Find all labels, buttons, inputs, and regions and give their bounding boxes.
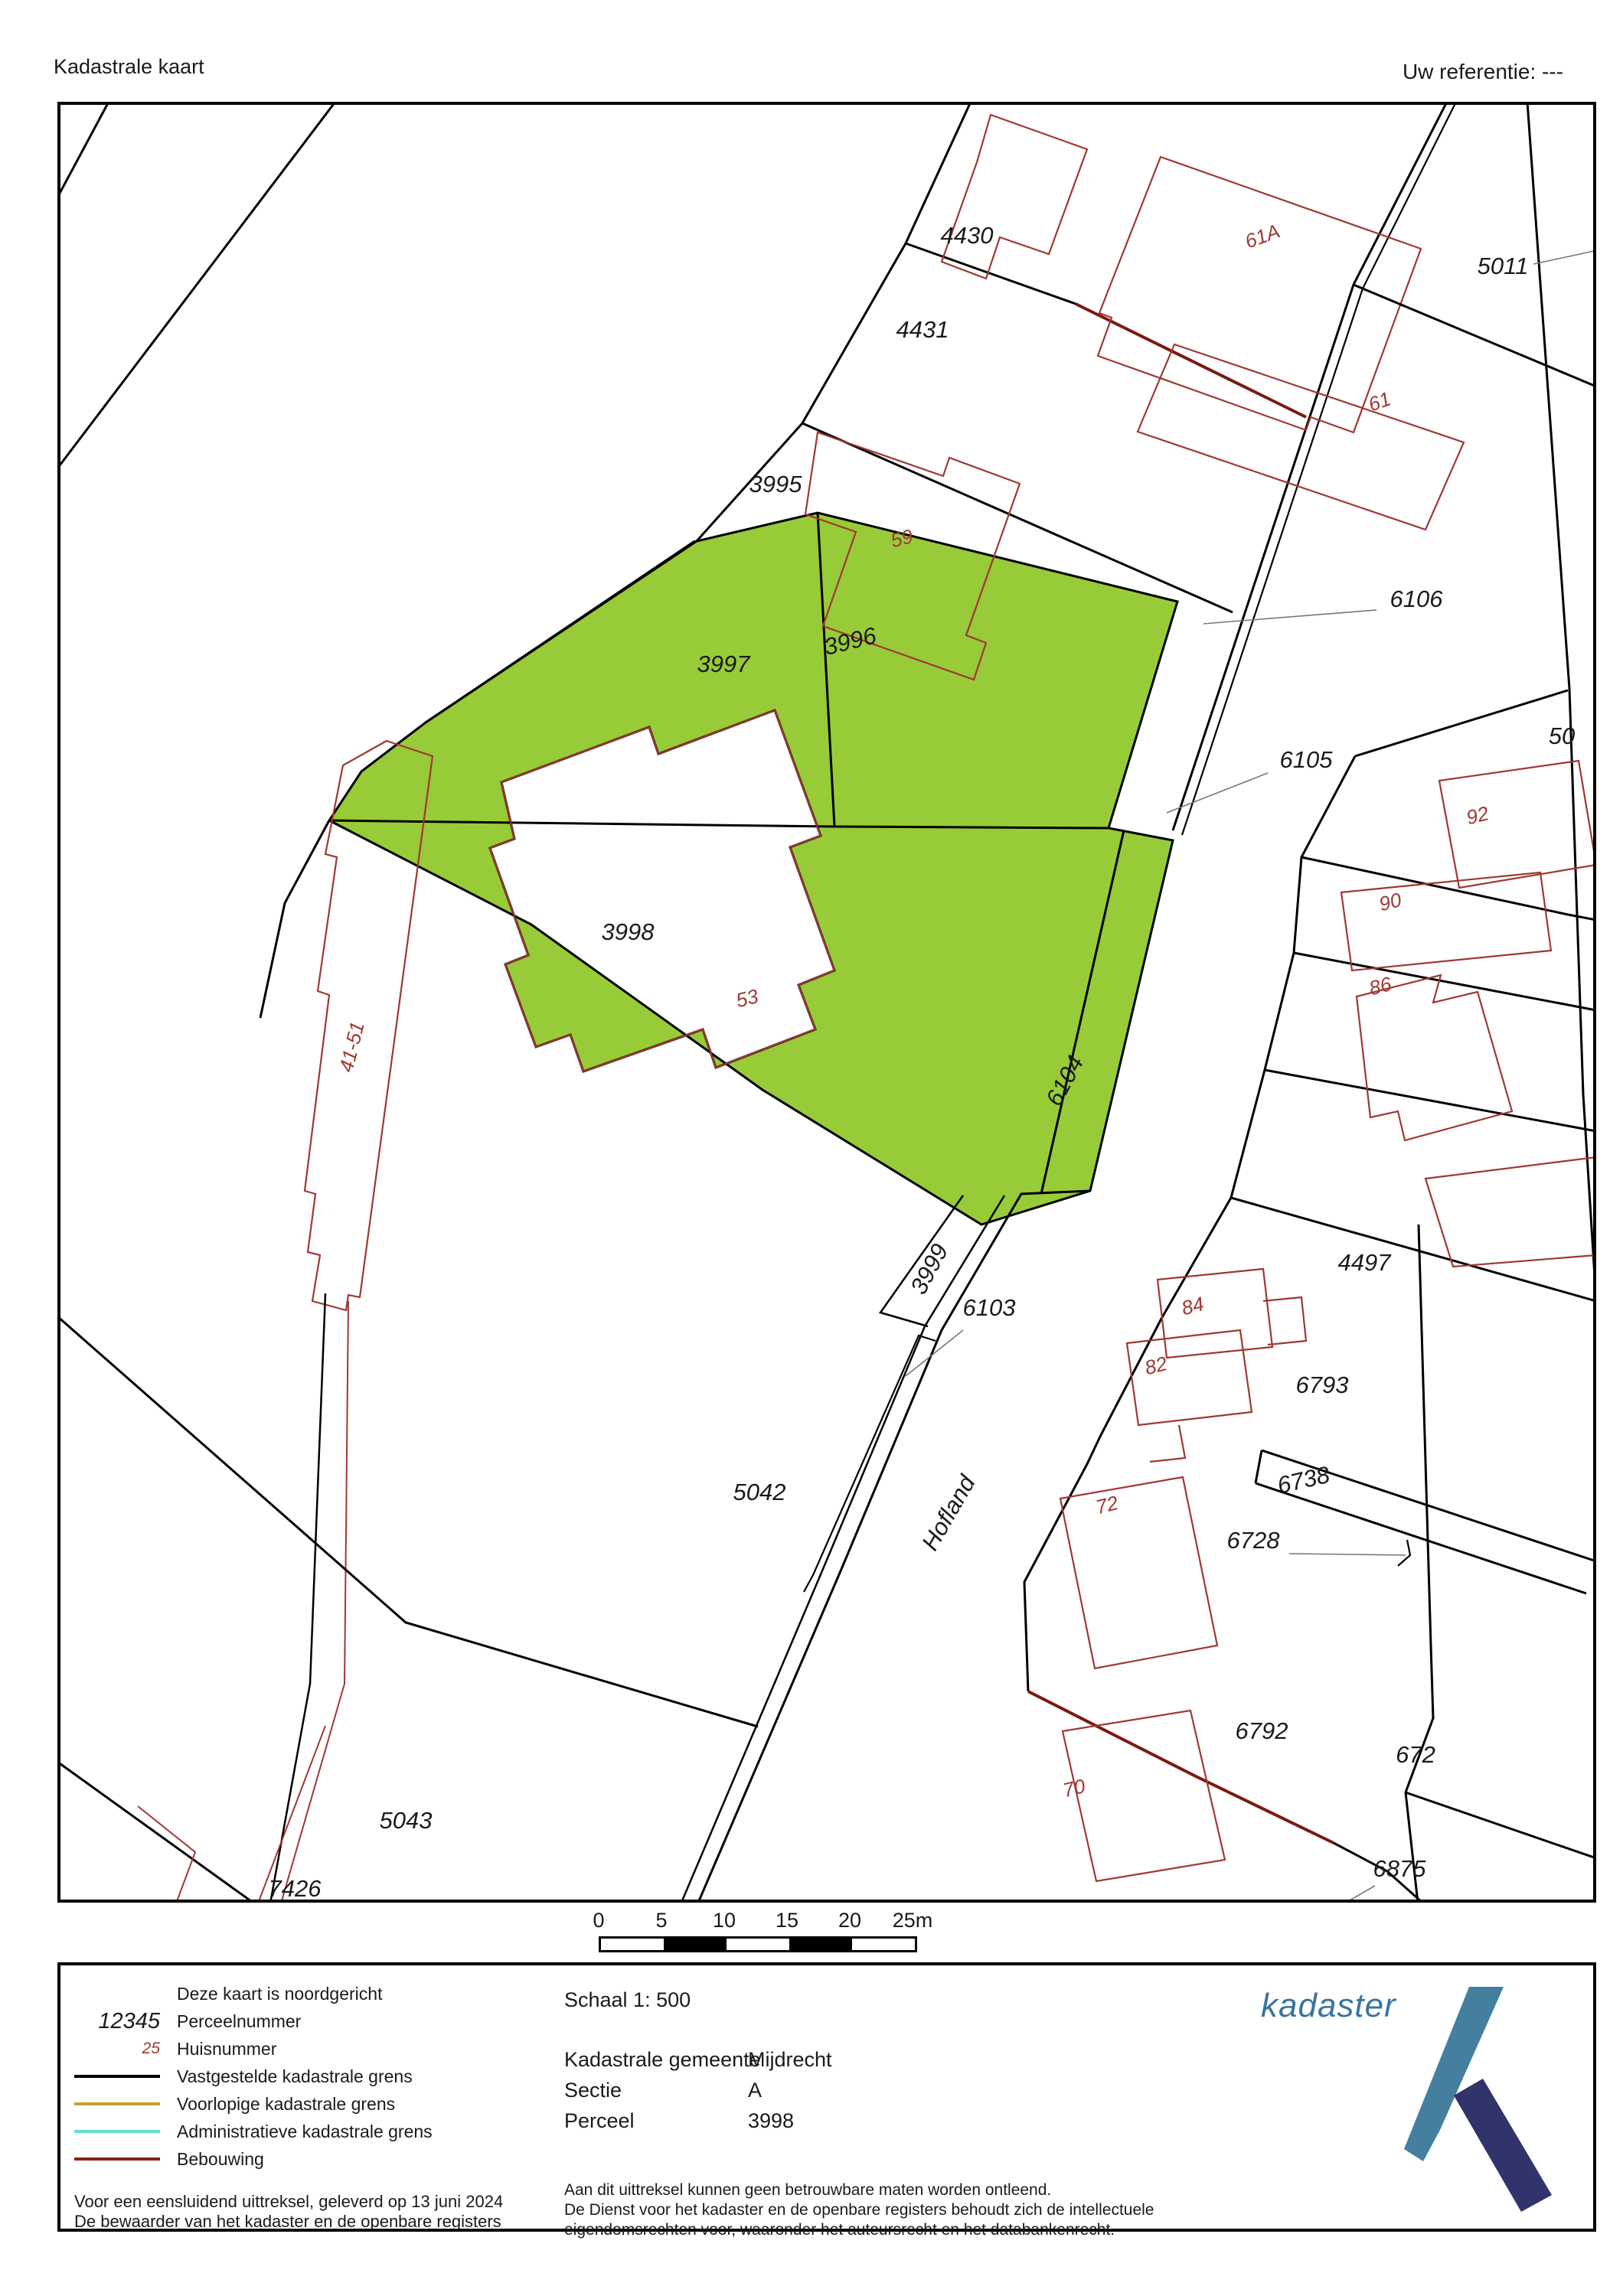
disclaimer-line: De Dienst voor het kadaster en de openba… [564, 2201, 1154, 2219]
parcel-4430-label: 4430 [941, 222, 994, 249]
boundary-line [57, 102, 109, 197]
scale-bar: 0510152025m [0, 1909, 1623, 1956]
leader-parcel-5011 [1533, 251, 1594, 264]
boundary-6875 [1406, 1792, 1596, 1858]
boundary-86-4497 [1265, 1070, 1596, 1131]
parcel-672-label: 672 [1396, 1741, 1435, 1768]
building-86 [1357, 975, 1512, 1140]
footer-panel: Deze kaart is noordgericht 12345Perceeln… [57, 1962, 1596, 2232]
scale-tick-5: 5 [655, 1909, 667, 1932]
road-line-west2 [1182, 102, 1456, 835]
kadaster-logo-text: kadaster [1261, 1987, 1396, 2025]
boundary-5042-5043 [57, 1316, 758, 1727]
building-4497 [1425, 1157, 1596, 1267]
legend-line-bebouwing [74, 2157, 160, 2161]
legend-label: Huisnummer [177, 2039, 276, 2060]
parcel-6103-label: 6103 [963, 1294, 1016, 1321]
info-value-gemeente: Mijdrecht [748, 2048, 832, 2072]
corridor-west [681, 1195, 1004, 1903]
boundary-bebouwing-heavy [1028, 1691, 1334, 1843]
scale-seg [664, 1939, 727, 1950]
info-value-sectie: A [748, 2079, 762, 2102]
parcel-6106-label: 6106 [1390, 585, 1444, 612]
legend-label: Perceelnummer [177, 2011, 301, 2032]
delivery-line: Voor een eensluidend uittreksel, gelever… [74, 2192, 503, 2212]
boundary-92-90 [1301, 857, 1596, 920]
highlighted-parcels [329, 513, 1177, 1225]
info-value-perceel: 3998 [748, 2109, 794, 2133]
building-72 [1060, 1477, 1217, 1668]
info-label-perceel: Perceel [564, 2109, 635, 2133]
parcel-6738-label: 6738 [1275, 1461, 1333, 1499]
building-4430 [942, 115, 1087, 279]
scale-tick-0: 0 [593, 1909, 604, 1932]
parcel-5042-label: 5042 [733, 1479, 786, 1505]
boundary-4497-6793 [1231, 1198, 1596, 1301]
scale-seg [789, 1939, 852, 1950]
disclaimer-line: eigendomsrechten voor, waaronder het aut… [564, 2221, 1115, 2239]
house-86-label: 86 [1367, 972, 1394, 1000]
scale-tick-25m: 25m [893, 1909, 933, 1932]
scale-text: Schaal 1: 500 [564, 1988, 691, 2012]
scale-seg [727, 1939, 789, 1950]
leader-parcel-6728 [1289, 1554, 1406, 1555]
scale-tick-20: 20 [838, 1909, 861, 1932]
legend-label: Voorlopige kadastrale grens [177, 2094, 395, 2115]
house-41-51-label: 41-51 [335, 1019, 369, 1075]
legend-label: Vastgestelde kadastrale grens [177, 2066, 413, 2087]
strip-6738-end [1256, 1450, 1262, 1483]
parcel-5043-label: 5043 [380, 1807, 433, 1834]
legend-label: Bebouwing [177, 2149, 264, 2170]
delivery-line: De bewaarder van het kadaster en de open… [74, 2212, 501, 2232]
scale-tick-10: 10 [713, 1909, 736, 1932]
house-84-label: 84 [1179, 1292, 1206, 1319]
parcel-3997-label: 3997 [697, 651, 752, 677]
street-hofland-label: Hofland [916, 1469, 981, 1555]
parcel-6793-label: 6793 [1296, 1371, 1349, 1398]
parcel-50-label: 50 [1549, 722, 1575, 749]
parcel-3995-label: 3995 [749, 471, 803, 497]
page-title: Kadastrale kaart [54, 55, 204, 79]
info-label-gemeente: Kadastrale gemeente [564, 2048, 761, 2072]
legend-parcel-example: 12345 [74, 2009, 160, 2034]
parcel-4431-label: 4431 [896, 316, 949, 343]
corridor-east [698, 1191, 1090, 1903]
parcel-7426-label: 7426 [269, 1875, 322, 1902]
house-61A-label: 61A [1242, 220, 1283, 253]
building-84 [1158, 1269, 1272, 1358]
kadaster-logo: kadaster [1239, 1973, 1592, 2226]
boundary-6793-west [1024, 1198, 1231, 1691]
building-41-51-tail [281, 1301, 348, 1903]
boundary-50-92 [1355, 690, 1568, 756]
legend-line-voorlopig [74, 2102, 160, 2105]
info-label-sectie: Sectie [564, 2079, 622, 2102]
parcel-6105-label: 6105 [1280, 746, 1334, 773]
scale-seg [601, 1939, 664, 1950]
leader-parcel-6105 [1167, 773, 1268, 813]
scale-tick-15: 15 [776, 1909, 798, 1932]
parcel-5011-label: 5011 [1478, 253, 1529, 279]
road-line-west [1173, 102, 1447, 830]
house-92-label: 92 [1464, 801, 1491, 829]
disclaimer-line: Aan dit uittreksel kunnen geen betrouwba… [564, 2181, 1051, 2200]
line-5042-west [270, 1293, 325, 1903]
house-72-label: 72 [1093, 1491, 1121, 1518]
legend-label: Deze kaart is noordgericht [177, 1984, 382, 2004]
house-70-label: 70 [1060, 1774, 1088, 1802]
building-82-step [1150, 1425, 1185, 1462]
house-53-label: 53 [733, 984, 761, 1012]
map-area: 4430443139953996399739983999501161066105… [57, 102, 1596, 1903]
parcel-6792-label: 6792 [1236, 1717, 1288, 1744]
parcel-4497-label: 4497 [1338, 1249, 1393, 1276]
legend-line-vastgesteld [74, 2075, 160, 2078]
parcel-6875-label: 6875 [1373, 1855, 1427, 1882]
legend-label: Administratieve kadastrale grens [177, 2122, 433, 2142]
boundary-line [57, 102, 335, 468]
zigzag-6728 [1398, 1540, 1410, 1566]
cadastral-map: 4430443139953996399739983999501161066105… [57, 102, 1596, 1903]
scale-bar-segments [599, 1936, 917, 1952]
strip-6738-b [1256, 1483, 1586, 1593]
logo-navy-bar [1454, 2079, 1552, 2212]
house-90-label: 90 [1376, 888, 1404, 915]
legend-line-administratief [74, 2130, 160, 2133]
parcel-3998-label: 3998 [602, 918, 655, 945]
block-west-edge [1231, 756, 1355, 1198]
reference-text: Uw referentie: --- [1403, 60, 1563, 84]
scale-seg [852, 1939, 915, 1950]
building-61 [1138, 344, 1464, 530]
building-82 [1127, 1330, 1252, 1425]
parcel-6728-label: 6728 [1227, 1527, 1281, 1554]
strip-6103 [804, 1336, 936, 1592]
legend-house-example: 25 [74, 2040, 160, 2058]
boundary-5043-7426 [57, 1762, 254, 1903]
